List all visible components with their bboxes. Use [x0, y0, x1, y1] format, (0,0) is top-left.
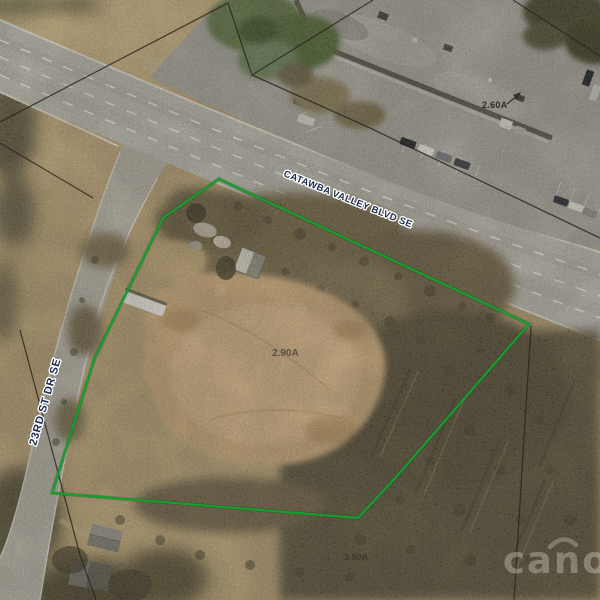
watermark: canopy [503, 539, 600, 582]
aerial-map: CATAWBA VALLEY BLVD SE 23RD ST DR SE 2.9… [0, 0, 600, 600]
area-label-south-parcel: 3.80A [344, 552, 369, 562]
area-label-subject-parcel: 2.90A [272, 348, 299, 359]
aerial-photo: CATAWBA VALLEY BLVD SE 23RD ST DR SE 2.9… [0, 0, 600, 600]
photo-grain [0, 0, 600, 600]
svg-text:2.60A: 2.60A [482, 100, 508, 110]
